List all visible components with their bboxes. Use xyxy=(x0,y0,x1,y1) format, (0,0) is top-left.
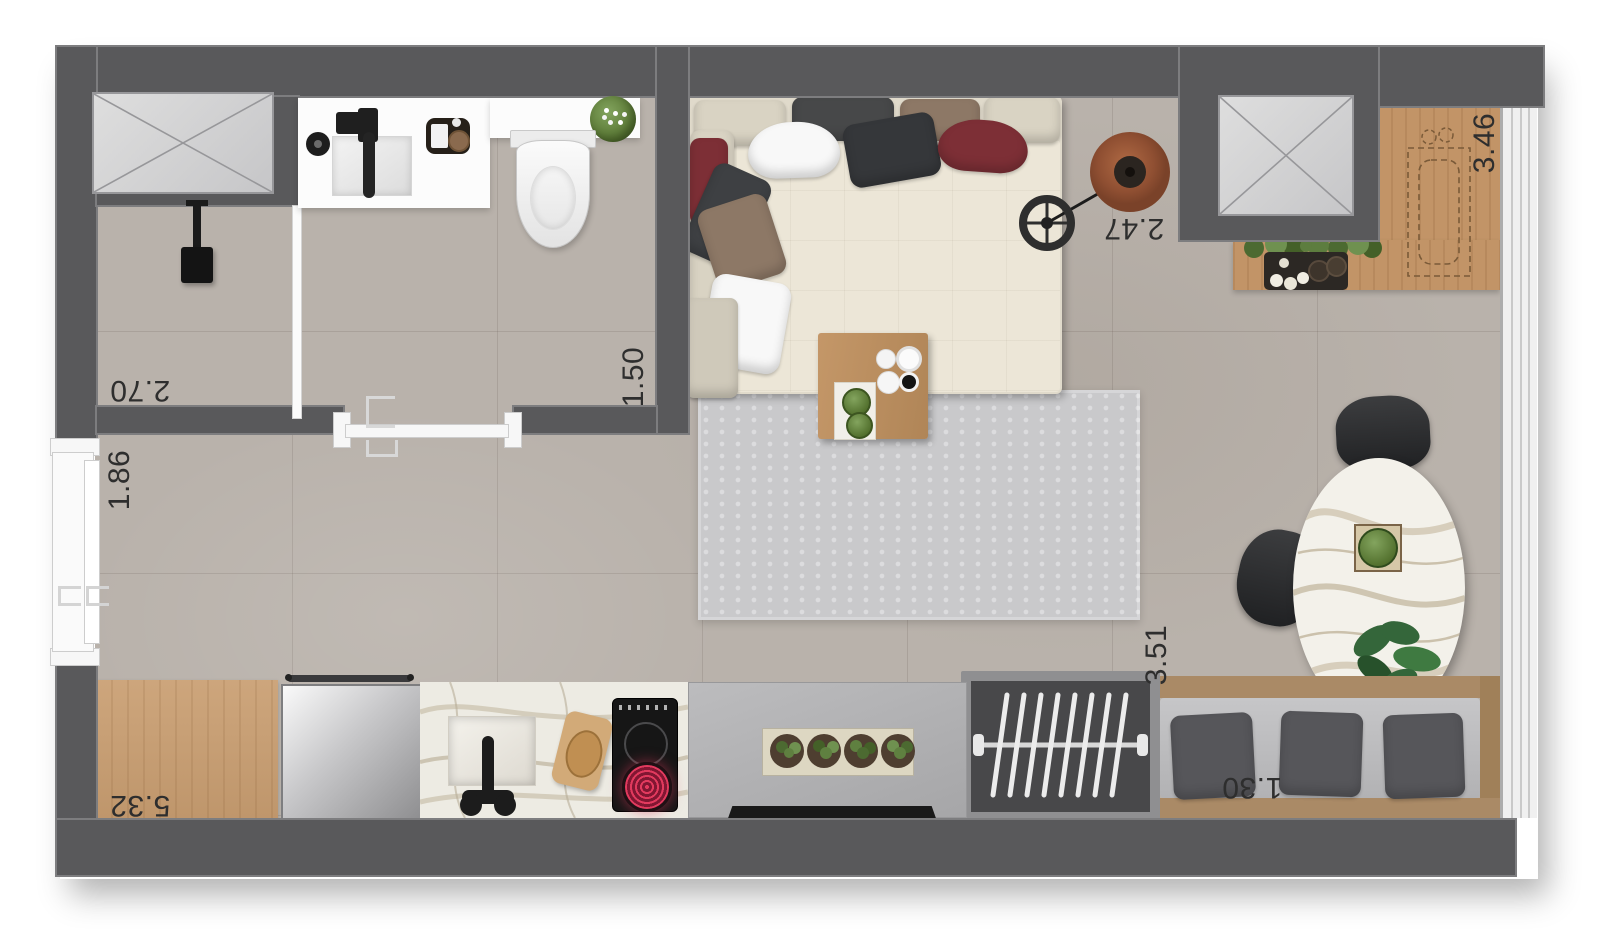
door-handle xyxy=(86,586,109,606)
window-mullion xyxy=(1511,108,1513,818)
floor-plan: 2.70 1.50 1.86 2.47 3.46 3.51 5.32 1.30 xyxy=(0,0,1600,938)
wall-bath-south-left xyxy=(95,405,345,435)
shower-glass-partition xyxy=(292,205,302,419)
shaft-x-icon xyxy=(94,94,272,192)
service-shaft xyxy=(92,92,274,194)
dim-shower-room: 2.70 xyxy=(110,373,170,407)
egg xyxy=(1279,258,1289,268)
dim-kitchen-top: 3.46 xyxy=(1468,113,1502,173)
dim-bathroom: 1.50 xyxy=(617,347,651,407)
shaft-x-icon xyxy=(1220,97,1352,214)
cup-black xyxy=(899,372,919,392)
cooktop-controls xyxy=(619,705,669,710)
wall-top-right xyxy=(1377,45,1545,108)
sofa-blanket xyxy=(686,298,738,398)
window-mullion xyxy=(1528,108,1530,818)
cup xyxy=(876,349,896,369)
window-wall xyxy=(1500,108,1537,818)
shower-head xyxy=(181,247,213,283)
window-mullion xyxy=(1520,108,1522,818)
faucet-knob xyxy=(494,794,516,816)
vanity-faucet-spout xyxy=(363,132,375,198)
dim-kitchen-run: 5.32 xyxy=(110,788,170,822)
dim-entry-door: 1.86 xyxy=(103,450,137,510)
herb-pot xyxy=(881,734,915,768)
door-handle xyxy=(58,586,81,606)
bench-back-wood xyxy=(1155,676,1500,698)
bench-pillow xyxy=(1279,711,1364,798)
vanity-plant xyxy=(590,96,636,142)
bench-pillow xyxy=(1383,713,1466,800)
cooktop-burner-on xyxy=(622,762,672,812)
door-handle xyxy=(366,396,395,428)
wall-bottom xyxy=(55,818,1517,877)
bowl xyxy=(1326,256,1347,277)
shower-stem xyxy=(193,203,201,251)
faucet-knob xyxy=(460,794,482,816)
herb-leaves xyxy=(784,748,794,758)
sink-faucet-spout xyxy=(482,736,494,798)
cup xyxy=(896,346,922,372)
bench-front-wood xyxy=(1155,798,1500,818)
door-handle xyxy=(366,440,398,457)
refrigerator xyxy=(281,684,422,820)
cooktop-burner-off xyxy=(624,722,668,766)
wall-bath-partition xyxy=(655,45,690,435)
soap-bar xyxy=(431,124,448,148)
dim-bench: 1.30 xyxy=(1222,770,1282,804)
service-shaft xyxy=(1218,95,1354,216)
wall-bath-south-right xyxy=(512,405,658,435)
herb-pot xyxy=(844,734,878,768)
refrigerator-handle xyxy=(287,675,412,682)
cup xyxy=(877,371,900,394)
handle-cap xyxy=(285,674,292,681)
egg xyxy=(1297,272,1309,284)
bench-side-wood xyxy=(1480,676,1500,818)
tray-dot xyxy=(452,118,461,127)
wardrobe-interior xyxy=(971,681,1150,812)
jar-dot xyxy=(314,140,322,148)
handle-cap xyxy=(407,674,414,681)
succulent xyxy=(1358,528,1398,568)
egg xyxy=(1270,274,1283,287)
toilet-bowl xyxy=(530,166,576,230)
wood-dish xyxy=(448,130,470,152)
dim-living-room: 2.47 xyxy=(1104,211,1164,245)
entry-sliding-door xyxy=(84,460,100,644)
wardrobe-hangers xyxy=(971,681,1150,812)
dim-living-length: 3.51 xyxy=(1140,625,1174,685)
egg xyxy=(1284,277,1297,290)
plant-flowers xyxy=(604,108,609,113)
herb-pot xyxy=(807,734,841,768)
potted-plant xyxy=(846,412,873,439)
